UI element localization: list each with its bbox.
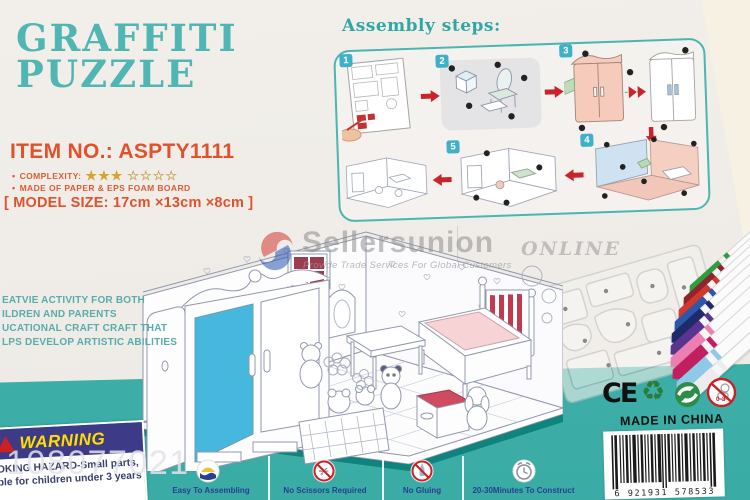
final-room-diagram — [339, 149, 433, 216]
arrow-left-icon — [431, 172, 451, 187]
feature-line: LPS DEVELOP ARTISTIC ABILITIES — [2, 336, 177, 350]
overlay-number: 108077021 — [6, 444, 190, 483]
step5-diagram — [451, 143, 565, 213]
step-number-3: 3 — [559, 44, 572, 57]
product-title-line1: GRAFFITI — [16, 20, 238, 56]
clock-icon — [512, 459, 536, 483]
no-scissors-icon: ✂ — [312, 459, 336, 483]
age-label: 0-3 — [716, 396, 726, 403]
step4-diagram — [584, 136, 708, 210]
watermark-brand: Sellersunion — [302, 226, 494, 260]
green-dot-icon — [674, 381, 701, 408]
bullet-icon: • — [12, 183, 16, 193]
ce-mark: CE — [602, 378, 636, 409]
step-number-5: 5 — [446, 140, 459, 153]
feature-line: UCATIONAL CRAFT CRAFT THAT — [2, 322, 177, 336]
complexity-label: COMPLEXITY: — [20, 171, 82, 181]
feature-text: EATVIE ACTIVITY FOR BOTH ILDREN AND PARE… — [2, 294, 177, 350]
arrow-right-icon — [544, 84, 564, 99]
made-in-label: MADE IN CHINA — [620, 412, 724, 429]
product-box-photo: Sellersunion ONLINE Provide Trade Servic… — [0, 0, 750, 500]
strip-divider — [382, 456, 384, 500]
step2-diagram — [440, 57, 542, 130]
bullet-icon: • — [12, 171, 16, 181]
strip-label-no-gluing: No Gluing — [392, 486, 452, 495]
step-number-1: 1 — [339, 54, 352, 67]
easy-assembly-icon — [196, 459, 220, 483]
recycle-icon: ♻ — [641, 376, 665, 407]
product-title-line2: PUZZLE — [16, 56, 238, 92]
watermark-brand-suffix: ONLINE — [521, 238, 621, 260]
assembly-title: Assembly steps: — [342, 16, 501, 36]
step-number-4: 4 — [580, 134, 593, 147]
arrow-right-icon — [421, 89, 441, 104]
no-gluing-icon — [410, 459, 434, 483]
material-row: • MADE OF PAPER & EPS FOAM BOARD — [12, 183, 191, 193]
strip-divider — [462, 456, 464, 500]
step-number-2: 2 — [435, 55, 448, 68]
room-mirror — [329, 290, 355, 338]
complexity-stars-filled: ★★★ — [85, 168, 123, 184]
strip-label-easy-assembly: Easy To Assembling — [166, 486, 256, 495]
material-label: MADE OF PAPER & EPS FOAM BOARD — [20, 183, 191, 193]
arrow-left-icon — [563, 168, 583, 183]
complexity-stars-empty: ☆☆☆☆ — [127, 168, 178, 184]
age-warning-icon: 0-3 — [706, 377, 737, 408]
room-stool — [417, 390, 469, 438]
feature-line: ILDREN AND PARENTS — [2, 308, 177, 322]
strip-label-no-scissors: No Scissors Required — [275, 486, 375, 495]
model-size: [ MODEL SIZE: 17cm ×13cm ×8cm ] — [4, 195, 253, 211]
strip-label-construct-time: 20-30Minutes To Construct — [466, 486, 581, 495]
item-number: ITEM NO.: ASPTY1111 — [10, 140, 234, 164]
product-title: GRAFFITI PUZZLE — [16, 20, 238, 93]
step3-diagram — [563, 44, 700, 137]
watermark-tagline: Provide Trade Services For Global Custom… — [303, 260, 512, 271]
watermark-logo-icon — [252, 227, 300, 275]
complexity-row: • COMPLEXITY: ★★★ ☆☆☆☆ — [12, 168, 178, 184]
step1-diagram — [339, 56, 418, 143]
feature-line: EATVIE ACTIVITY FOR BOTH — [2, 294, 177, 308]
strip-divider — [268, 456, 270, 500]
barcode: 6 921931 578533 — [603, 428, 725, 499]
assembly-panel: 1 2 — [333, 38, 711, 223]
